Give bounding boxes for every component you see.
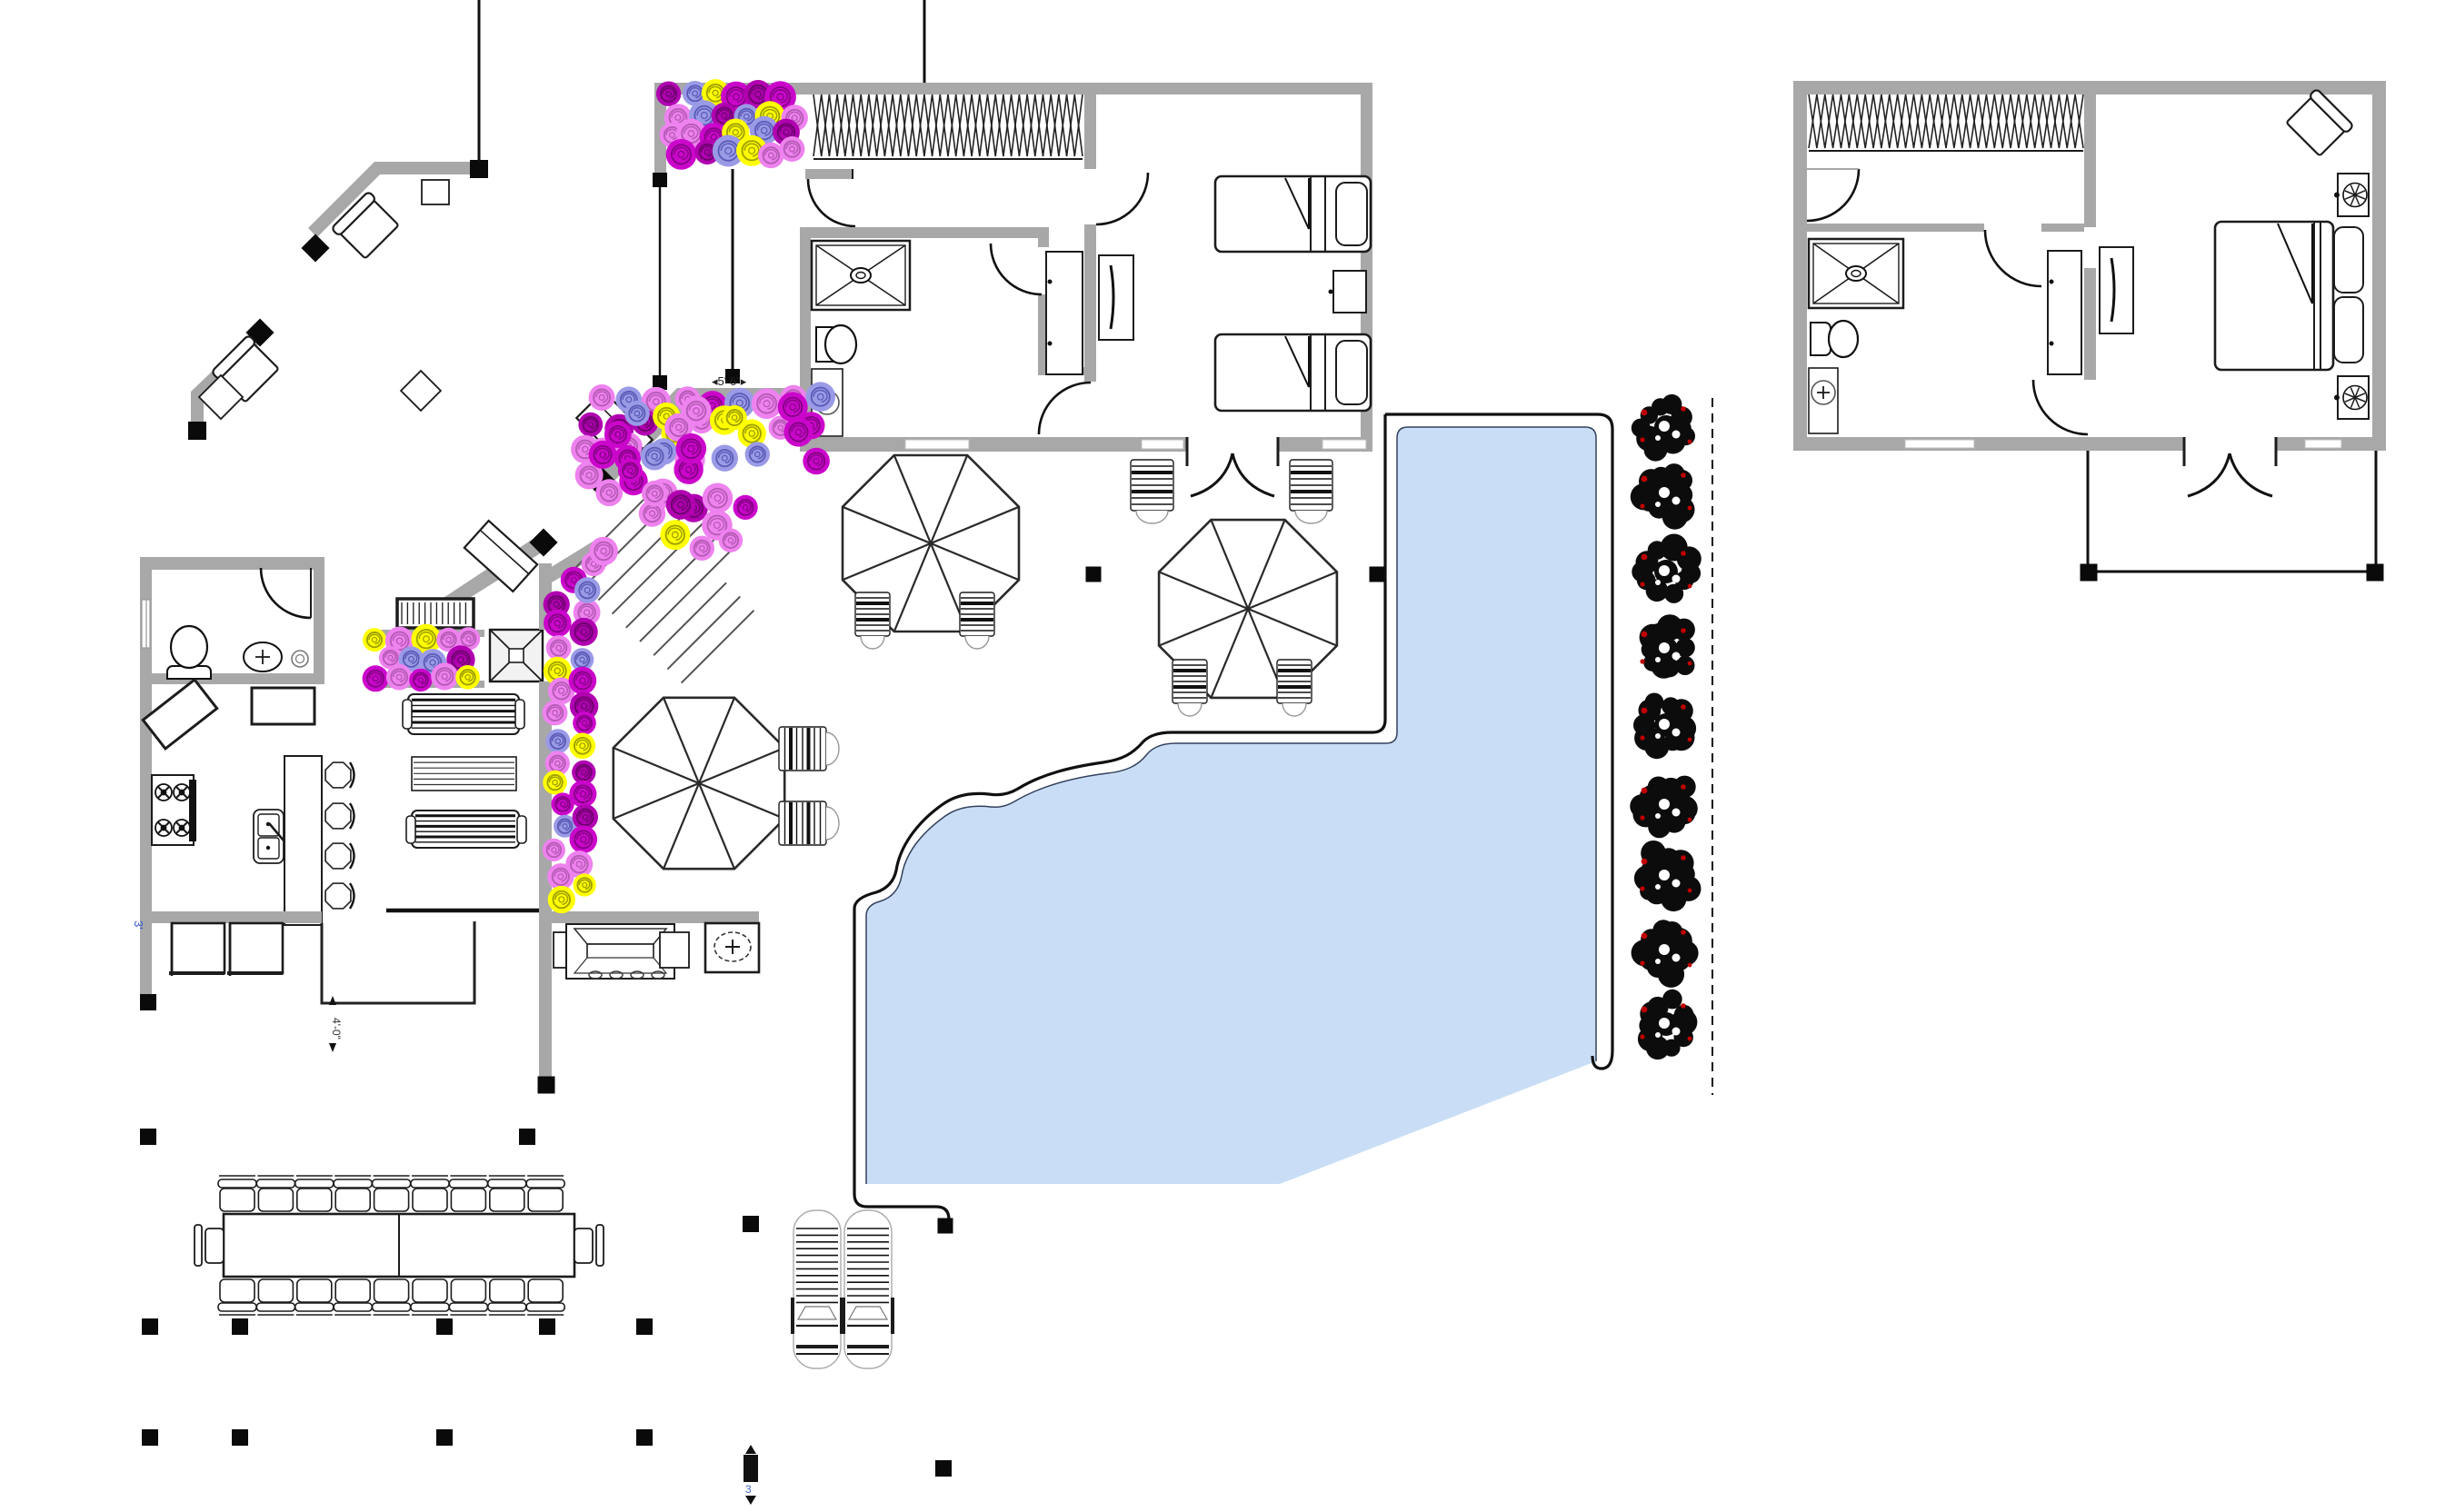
svg-text:3': 3'	[132, 920, 145, 930]
svg-text:3: 3	[745, 1483, 752, 1496]
svg-text:4'-0": 4'-0"	[330, 1018, 343, 1039]
svg-text:◂5' 6"▸: ◂5' 6"▸	[712, 374, 747, 388]
